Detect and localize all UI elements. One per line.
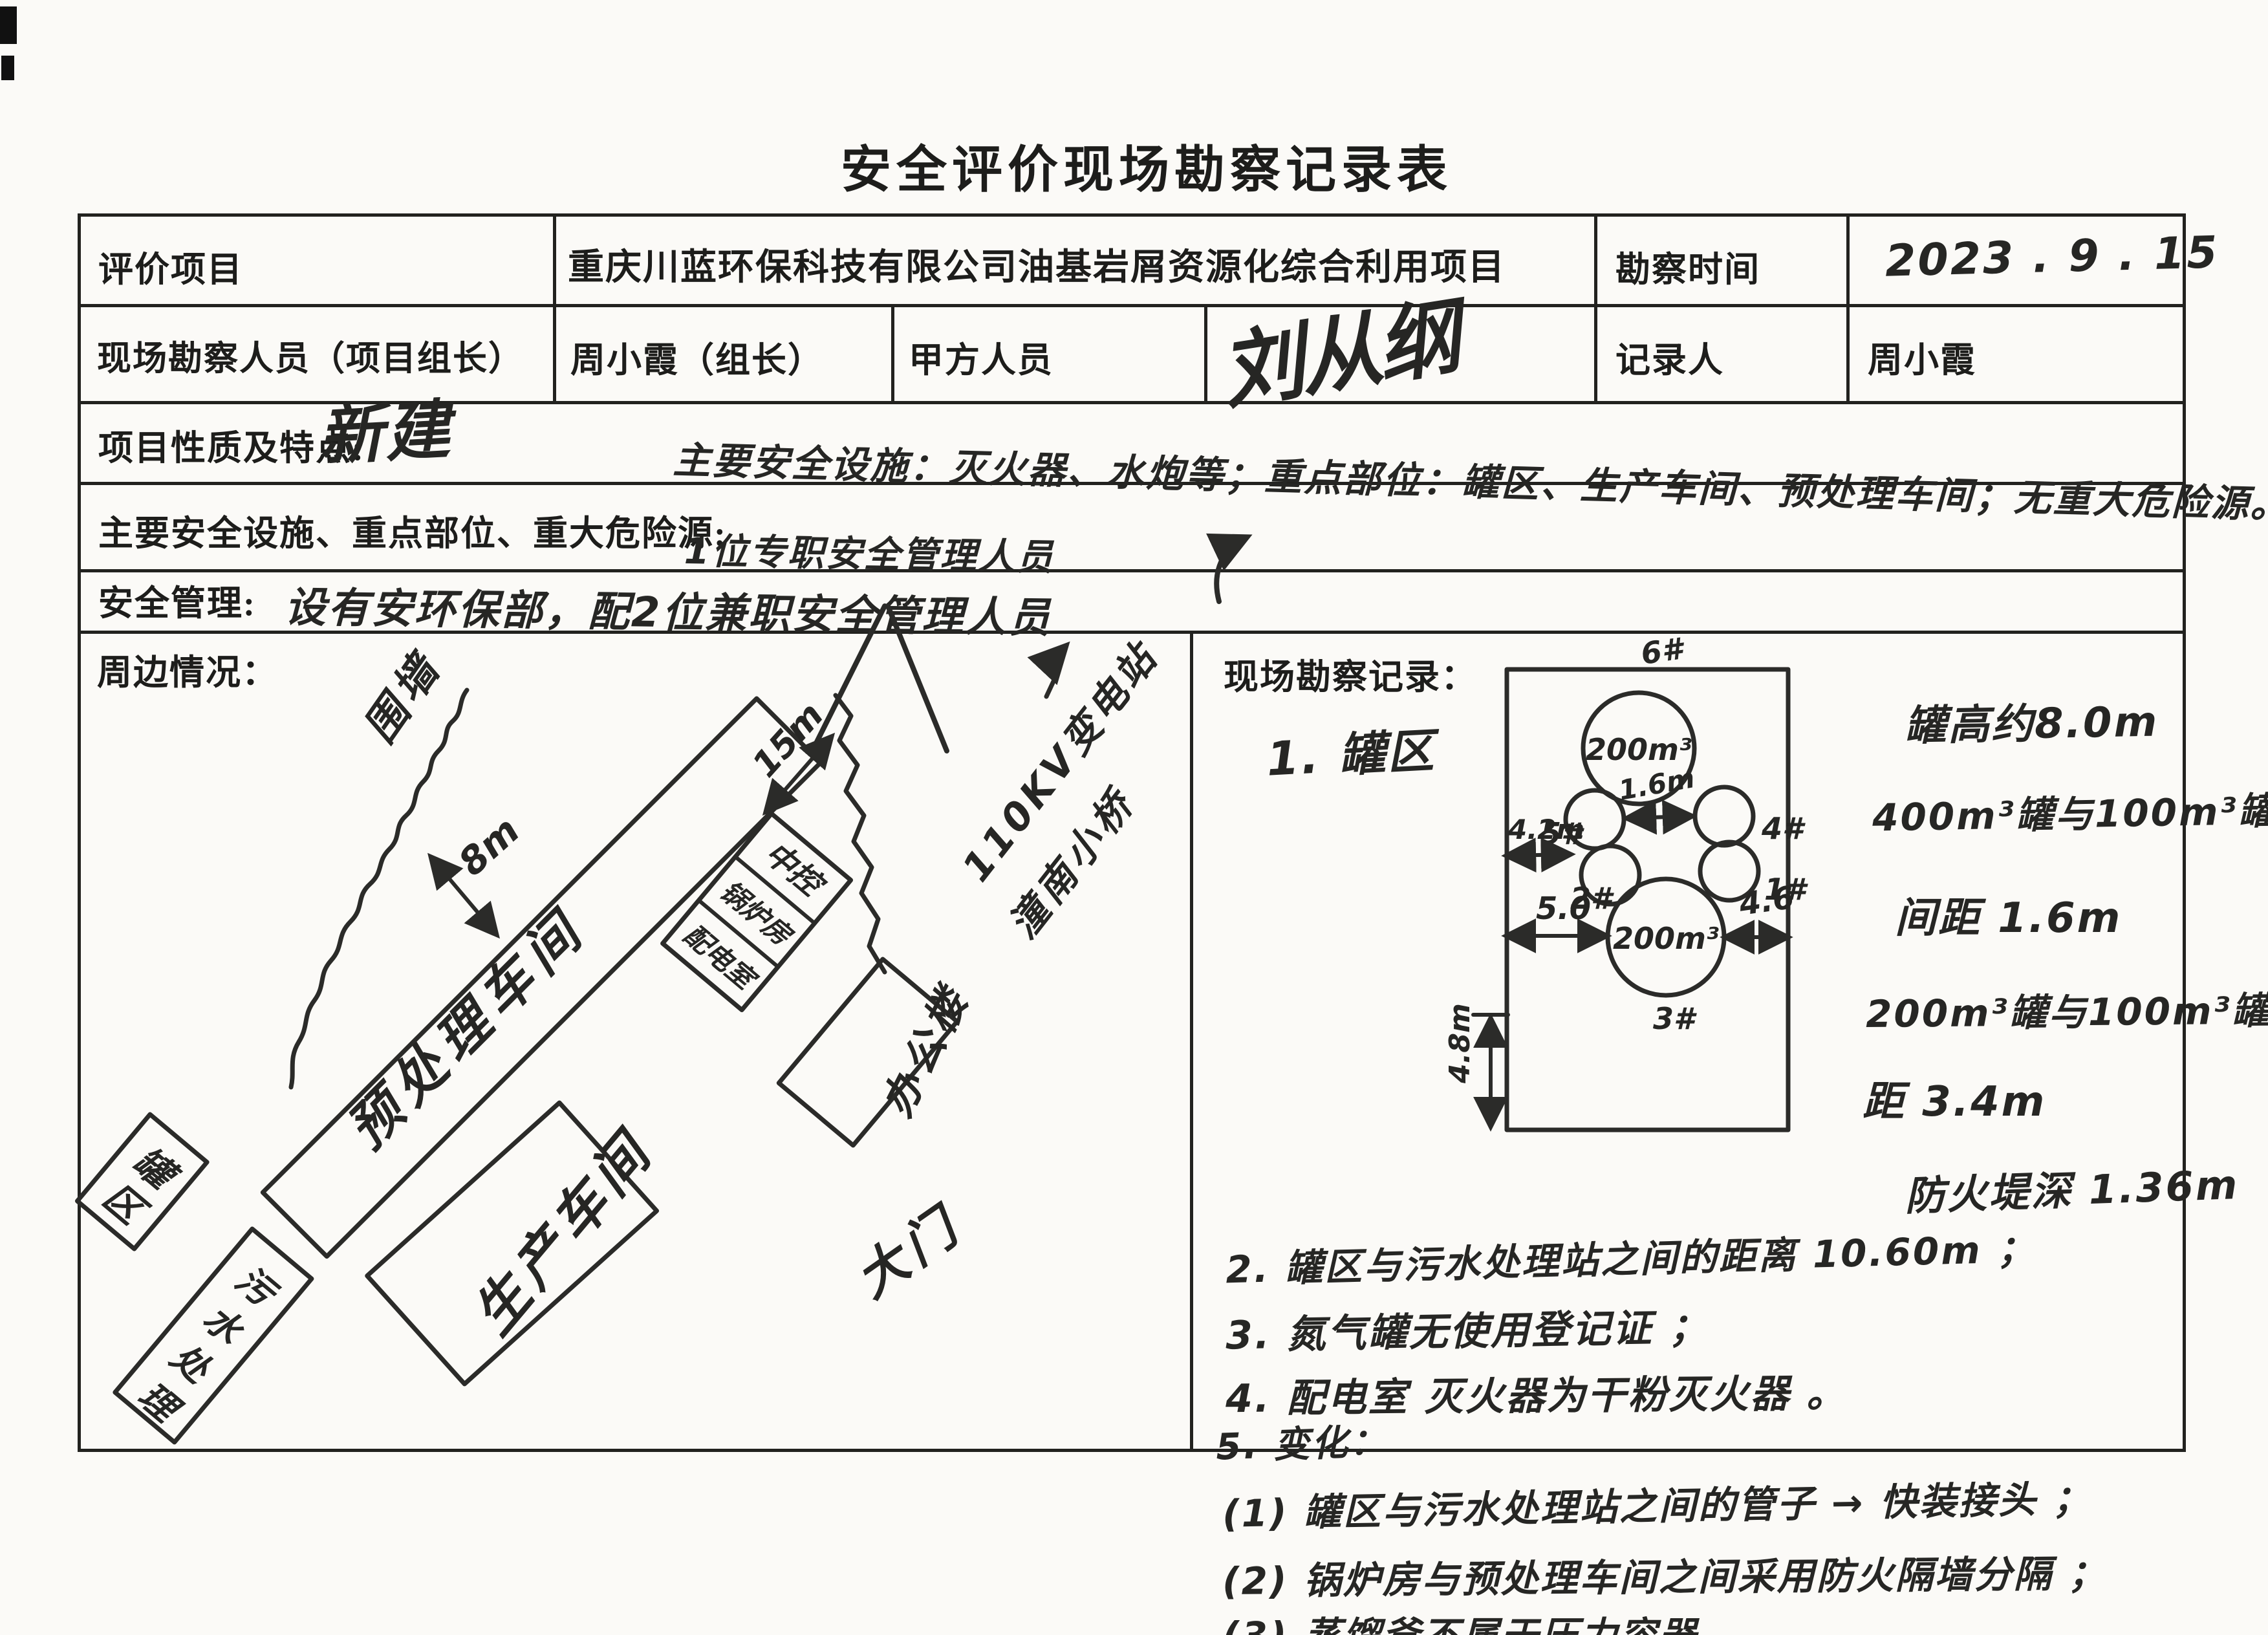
- row-divider: [78, 304, 2186, 307]
- tank-3-volume: 200m³: [1613, 921, 1719, 956]
- control-room-label: 中控: [757, 835, 832, 906]
- note-gap1-line1: 400m³罐与100m³罐: [1872, 781, 2268, 842]
- survey-time-label: 勘察时间: [1615, 241, 1760, 292]
- scan-artifact: [1, 56, 14, 80]
- site-plan-sketch: 围墙 8m 预处理车间 15m 110KV变电站 潼南小桥 中控 锅炉房 配电室: [78, 631, 1190, 1452]
- power-room-label: 配电室: [678, 918, 764, 997]
- dim-1-6m-label: 1.6m: [1616, 762, 1697, 807]
- tank-4: [1695, 787, 1753, 845]
- dim-4-2m-label: 4.2m: [1507, 814, 1584, 845]
- survey-sub1: (1) 罐区与污水处理站之间的管子 → 快装接头 ；: [1222, 1468, 2092, 1537]
- col-divider: [1846, 213, 1850, 401]
- sewage-box: 污 水 处 理: [114, 1229, 312, 1443]
- note-dike-depth: 防火堤深 1.36m: [1904, 1152, 2240, 1222]
- table-border-top: [78, 213, 2186, 217]
- party-a-label: 甲方人员: [909, 331, 1053, 382]
- dim-4-2m-arrow: [1508, 854, 1569, 856]
- management-label: 安全管理:: [98, 574, 256, 625]
- sewage-label: 水: [195, 1297, 252, 1354]
- dim-15m-label: 15m: [744, 695, 832, 785]
- surveyor-label: 现场勘察人员（项目组长）: [97, 331, 524, 380]
- office-label: 办公楼: [873, 977, 979, 1124]
- dim-5-0-label: 5.0: [1536, 891, 1591, 927]
- scanned-survey-form: 安全评价现场勘察记录表 评价项目 重庆川蓝环保科技有限公司油基岩屑资源化综合利用…: [0, 0, 2268, 1635]
- sewage-label: 理: [130, 1374, 189, 1433]
- nature-value-handwritten: 新建: [316, 377, 453, 478]
- tank-3-id: 3#: [1653, 1001, 1697, 1036]
- form-title: 安全评价现场勘察记录表: [841, 129, 1436, 202]
- surveyor-value: 周小霞（组长）: [570, 331, 824, 382]
- survey-sub3: (3) 蒸馏釜不属于压力容器 。: [1222, 1605, 1753, 1635]
- fence-label: 围墙: [354, 643, 451, 752]
- pen-arrow-icon: [1193, 529, 1264, 613]
- tank-6-volume: 200m³: [1586, 732, 1692, 767]
- dim-1-6m-arrow: [1628, 816, 1690, 818]
- dim-8m-label: 8m: [450, 808, 528, 884]
- note-gap2-line2: 距 3.4m: [1863, 1068, 2046, 1128]
- col-divider: [553, 213, 556, 401]
- tank-6-id: 6#: [1639, 631, 1687, 671]
- safety-label: 主要安全设施、重点部位、重大危险源:: [98, 504, 727, 556]
- utility-building: 中控 锅炉房 配电室: [663, 814, 851, 1010]
- safety-value-handwritten: 主要安全设施：灭火器、水炮等；重点部位：罐区、生产车间、预处理车间；无重大危险源…: [673, 429, 2268, 529]
- recorder-value: 周小霞: [1868, 331, 1976, 382]
- col-divider: [1594, 213, 1597, 401]
- survey-time-value-handwritten: 2023 . 9 . 15: [1885, 227, 2219, 287]
- note-gap2-line1: 200m³罐与100m³罐间: [1866, 980, 2268, 1038]
- gate-label: 大门: [845, 1196, 973, 1309]
- survey-item3: 3. 氮气罐无使用登记证 ；: [1225, 1295, 1710, 1360]
- col-divider: [1204, 304, 1207, 401]
- note-gap1-line2: 间距 1.6m: [1895, 885, 2122, 944]
- col-divider: [891, 304, 894, 401]
- sewage-label: 处: [162, 1336, 219, 1392]
- note-tank-height: 罐高约8.0m: [1904, 689, 2159, 753]
- survey-item5: 5. 变化：: [1215, 1412, 1388, 1470]
- management-insert-handwritten: 1位专职安全管理人员: [684, 522, 1055, 581]
- tank-4-id: 4#: [1761, 811, 1806, 846]
- dim-4-8m-label: 4.8m: [1443, 1003, 1476, 1084]
- recorder-label: 记录人: [1615, 331, 1724, 382]
- tank-area-box: 罐 区: [78, 1114, 208, 1249]
- north-arrow-icon: [1045, 647, 1064, 697]
- sewage-label: 污: [228, 1259, 286, 1317]
- scan-artifact: [0, 6, 17, 44]
- row-divider: [78, 569, 2186, 572]
- survey-sub2: (2) 锅炉房与预处理车间之间采用防火隔墙分隔 ；: [1222, 1543, 2108, 1605]
- dim-4-6-label: 4.6: [1736, 880, 1797, 923]
- substation-fence-line: [836, 695, 885, 972]
- eval-project-label: 评价项目: [98, 241, 243, 292]
- pretreatment-label: 预处理车间: [336, 898, 599, 1162]
